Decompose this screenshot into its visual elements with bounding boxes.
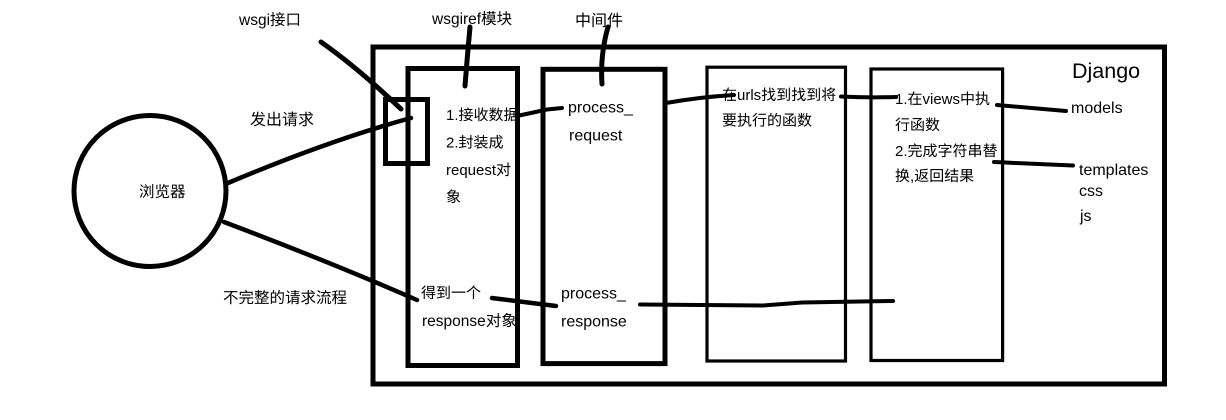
svg-text:request: request: [569, 128, 623, 145]
svg-text:2.: 2.: [895, 143, 908, 160]
svg-text:models: models: [1071, 100, 1123, 117]
svg-text:views: views: [923, 91, 961, 108]
svg-text:urls: urls: [737, 87, 761, 104]
svg-text:1.: 1.: [895, 91, 908, 108]
svg-text:response: response: [561, 314, 627, 331]
svg-text:1.: 1.: [446, 107, 459, 124]
svg-text:css: css: [1079, 183, 1103, 200]
svg-text:Django: Django: [1072, 59, 1140, 83]
svg-text:request: request: [446, 162, 497, 179]
svg-text:wsgiref: wsgiref: [431, 11, 482, 28]
svg-text:response: response: [422, 313, 486, 330]
svg-text:wsgi: wsgi: [238, 12, 270, 29]
svg-text:process_: process_: [568, 100, 634, 117]
svg-text:js: js: [1079, 208, 1092, 225]
svg-text:2.: 2.: [446, 135, 459, 152]
svg-text:,: ,: [910, 168, 914, 185]
svg-text:templates: templates: [1079, 162, 1148, 179]
svg-text:process_: process_: [561, 286, 627, 303]
